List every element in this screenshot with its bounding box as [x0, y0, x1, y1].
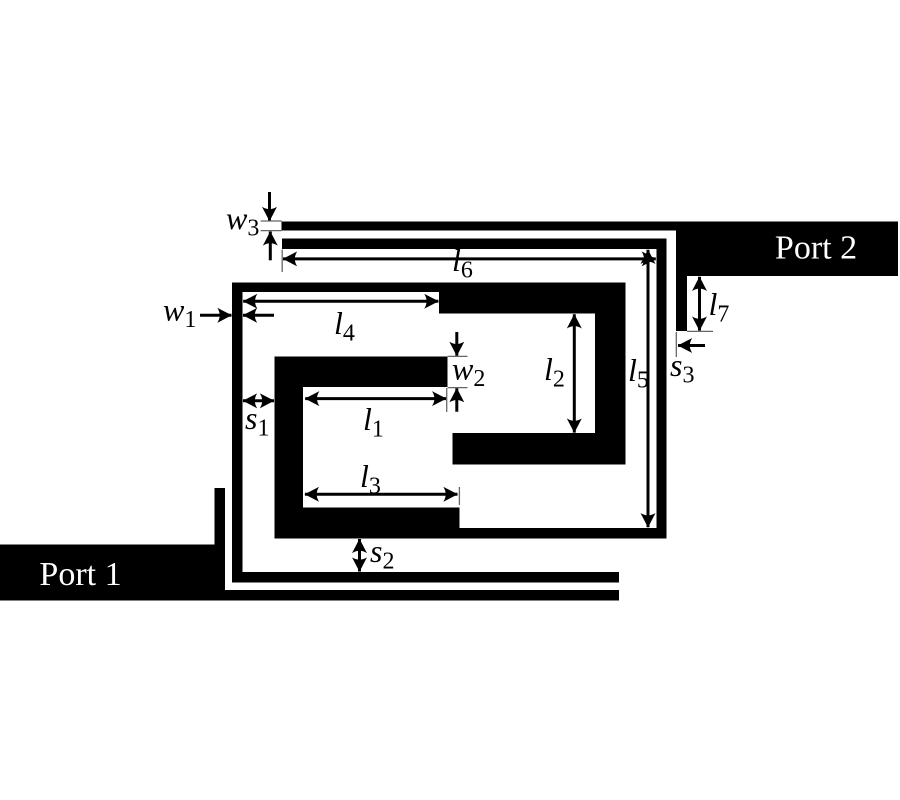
svg-text:Port 1: Port 1: [39, 556, 121, 593]
svg-text:Port 2: Port 2: [775, 230, 857, 267]
